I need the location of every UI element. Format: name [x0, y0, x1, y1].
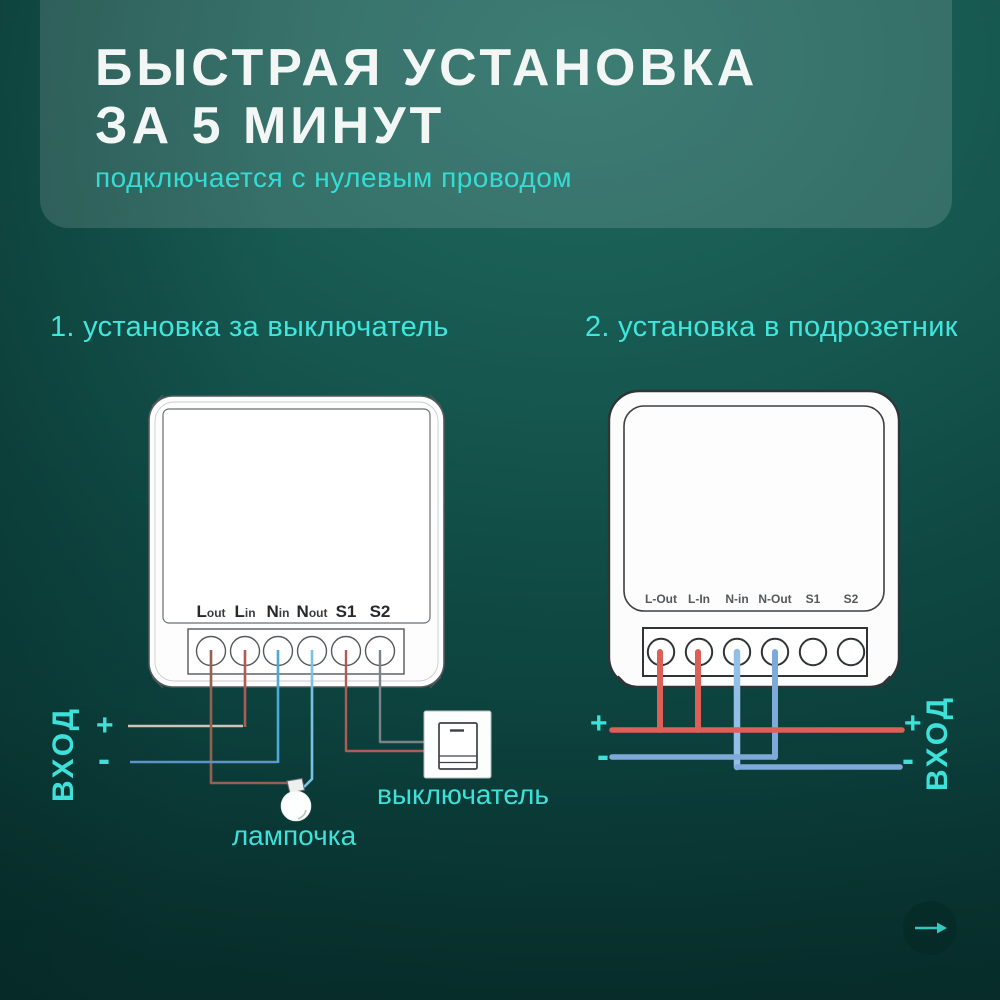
device-2-face [624, 406, 884, 611]
minus-label-2-right: - [902, 744, 914, 774]
input-direction-label-2: ВХОД [921, 675, 955, 811]
terminal-label-s2: S2 [823, 592, 879, 606]
plus-label-1: + [96, 711, 114, 741]
relay-device-2 [609, 391, 899, 687]
plus-label-2-right: + [904, 709, 922, 739]
input-direction-label-1: ВХОД [47, 686, 81, 822]
switch-label: выключатель [343, 779, 583, 811]
wall-switch-icon [424, 711, 491, 778]
minus-label-1: - [98, 744, 110, 774]
next-arrow-icon [903, 901, 957, 955]
poster: БЫСТРАЯ УСТАНОВКА ЗА 5 МИНУТ подключаетс… [0, 0, 1000, 1000]
device-2-terminal-strip [643, 628, 867, 676]
terminal-label-s2: S2 [356, 602, 404, 622]
lamp-label: лампочка [194, 820, 394, 852]
wiring-diagram-scene [0, 0, 1000, 1000]
device-1-face [163, 409, 430, 623]
minus-label-2-left: - [597, 740, 609, 770]
relay-device-1 [149, 395, 444, 688]
